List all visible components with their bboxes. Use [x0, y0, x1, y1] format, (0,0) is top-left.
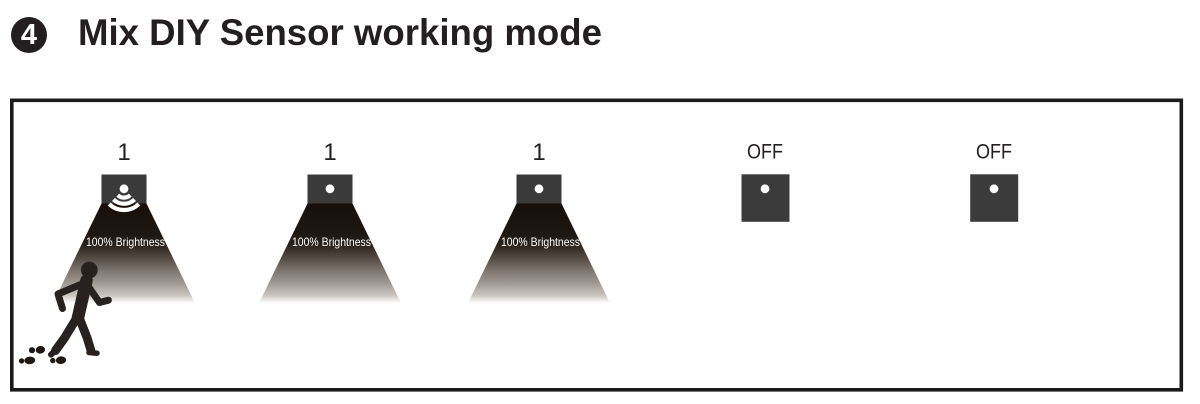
svg-text:1: 1 — [323, 139, 336, 166]
svg-text:100% Brightness: 100% Brightness — [292, 235, 371, 249]
svg-text:OFF: OFF — [976, 140, 1012, 163]
svg-text:100% Brightness: 100% Brightness — [86, 235, 165, 249]
svg-text:Mix DIY Sensor working mode: Mix DIY Sensor working mode — [78, 11, 602, 53]
svg-text:1: 1 — [117, 139, 130, 166]
svg-text:1: 1 — [532, 139, 545, 166]
svg-text:4: 4 — [21, 19, 37, 51]
svg-text:100% Brightness: 100% Brightness — [501, 235, 580, 249]
svg-text:OFF: OFF — [747, 140, 783, 163]
